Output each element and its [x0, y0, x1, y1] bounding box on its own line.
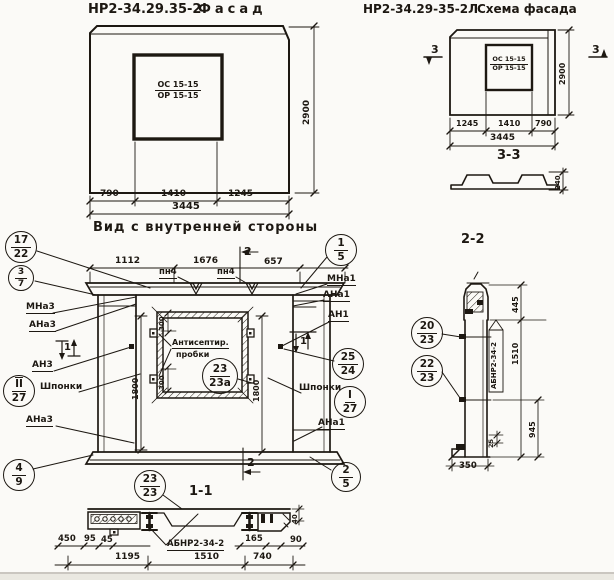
dim-1410: 1410 [498, 120, 520, 128]
callout-top: 3 [15, 268, 27, 279]
drawing-sheet: НР2-34.29.35-2 Фасад НР2-34.29-35-2Л Схе… [0, 0, 614, 580]
label-pn4-right: пн4 [217, 268, 235, 279]
section-marker-2-top: 2 [244, 246, 252, 257]
callout-23-23: 23 23 [134, 470, 166, 502]
callout-top: 22 [417, 359, 438, 372]
section-1-1-title: 1-1 [189, 485, 213, 498]
dim-945: 945 [529, 421, 537, 438]
callout-23-23a: 23 23а [202, 358, 238, 394]
callout-top: 4 [12, 463, 25, 476]
label-pn4-left: пн4 [159, 268, 177, 279]
callout-top: I [345, 390, 355, 403]
callout-top: 25 [338, 352, 359, 365]
callout-top: 23 [210, 364, 231, 377]
dim-25: 25 [488, 439, 495, 448]
callout-22-23: 22 23 [411, 355, 443, 387]
callout-1-5: 1 5 [325, 234, 357, 266]
dim-165: 165 [245, 535, 263, 544]
dim-1510: 1510 [512, 343, 520, 365]
dim-1245: 1245 [456, 120, 478, 128]
note-antiseptic: Антисептир. [172, 339, 229, 349]
title-left-name: Фасад [198, 3, 267, 16]
callout-2-5: 2 5 [331, 462, 361, 492]
dim-95: 95 [84, 535, 96, 544]
dim-90: 90 [290, 536, 302, 545]
label-ana3-bottom: АНа3 [26, 416, 53, 427]
label-an1: АН1 [328, 311, 349, 322]
dim-1510: 1510 [194, 553, 219, 562]
section-marker-1-left: 1 [64, 343, 71, 353]
note-plugs: пробки [176, 351, 209, 359]
callout-bottom: 27 [343, 403, 358, 415]
dim-45: 45 [101, 536, 113, 545]
dim-1410: 1410 [161, 190, 186, 199]
callout-bottom: 22 [14, 248, 29, 260]
callout-top: 17 [11, 235, 32, 248]
label-ana1: АНа1 [323, 291, 350, 302]
facade-right-linework [424, 27, 607, 194]
mark-or: ОР 15-15 [492, 65, 525, 72]
title-left-code: НР2-34.29.35-2 [88, 3, 201, 16]
callout-bottom: 27 [12, 392, 27, 404]
dim-445: 445 [512, 296, 520, 313]
dim-1195: 1195 [115, 553, 140, 562]
label-ana3: АНа3 [29, 321, 56, 332]
dim-240: 240 [555, 175, 562, 190]
callout-II-27: II 27 [3, 375, 35, 407]
callout-top: 20 [417, 321, 438, 334]
label-shponki-right: Шпонки [299, 384, 341, 393]
callout-bottom: 23а [209, 377, 231, 389]
label-an3: АН3 [32, 361, 53, 372]
title-right-code: НР2-34.29-35-2Л [363, 3, 478, 15]
scan-edge [0, 573, 614, 580]
section-marker-1-right: 1 [300, 337, 307, 347]
section-marker-3-right: 3 [592, 44, 600, 55]
section-marker-3-left: 3 [431, 44, 439, 55]
panel-mark-right: ОС 15-15 ОР 15-15 [489, 56, 529, 73]
callout-bottom: 5 [337, 251, 344, 263]
callout-3-7: 3 7 [8, 265, 34, 291]
label-ana1-bottom: АНа1 [318, 419, 345, 430]
callout-25-24: 25 24 [332, 348, 364, 380]
title-right-name: Схема фасада [477, 3, 577, 15]
callout-20-23: 20 23 [411, 317, 443, 349]
mark-or: ОР 15-15 [157, 91, 198, 100]
dim-300-bottom: 300 [159, 375, 166, 390]
dim-40: 40 [292, 514, 299, 524]
dim-790: 790 [535, 120, 552, 128]
label-mna3: МНа3 [26, 303, 55, 314]
callout-bottom: 23 [420, 372, 435, 384]
label-abnr-1-1: АБНР2-34-2 [167, 540, 224, 551]
mark-os: ОС 15-15 [155, 80, 200, 91]
callout-top: II [12, 379, 26, 392]
callout-top: 1 [334, 238, 347, 251]
section-3-3-title: 3-3 [497, 149, 521, 162]
callout-top: 2 [339, 465, 352, 478]
callout-bottom: 23 [143, 487, 158, 499]
dim-1676: 1676 [193, 257, 218, 266]
dim-1245: 1245 [228, 190, 253, 199]
dim-2900: 2900 [303, 100, 312, 125]
callout-bottom: 5 [342, 478, 349, 490]
callout-bottom: 24 [341, 365, 356, 377]
dim-3445: 3445 [490, 134, 515, 143]
dim-350: 350 [459, 462, 477, 471]
dim-1112: 1112 [115, 257, 140, 266]
section-marker-2-bottom: 2 [247, 457, 255, 468]
dim-657: 657 [264, 258, 283, 267]
dim-1800-right: 1800 [253, 380, 261, 402]
dim-3445: 3445 [172, 202, 200, 212]
dim-740: 740 [253, 553, 272, 562]
callout-17-22: 17 22 [5, 231, 37, 263]
dim-790: 790 [100, 190, 119, 199]
callout-top: 23 [140, 474, 161, 487]
drawing-linework [0, 0, 614, 580]
panel-mark-left: ОС 15-15 ОР 15-15 [153, 80, 203, 100]
label-shponki-left: Шпонки [40, 383, 82, 392]
callout-bottom: 23 [420, 334, 435, 346]
callout-bottom: 7 [18, 279, 24, 289]
label-mna1: МНа1 [327, 275, 356, 286]
label-abnr-2-2: АБНР2-34-2 [491, 342, 498, 389]
callout-bottom: 9 [15, 476, 22, 488]
dim-1800-left: 1800 [132, 378, 140, 400]
facade-left-linework [87, 23, 319, 219]
section-2-2-title: 2-2 [461, 233, 485, 246]
title-inner-view: Вид с внутренней стороны [93, 221, 318, 234]
dim-450: 450 [58, 535, 76, 544]
callout-I-27: I 27 [334, 386, 366, 418]
dim-2900: 2900 [559, 63, 567, 85]
callout-4-9: 4 9 [3, 459, 35, 491]
inner-view-linework [33, 247, 348, 509]
dim-300-top: 300 [159, 316, 166, 331]
